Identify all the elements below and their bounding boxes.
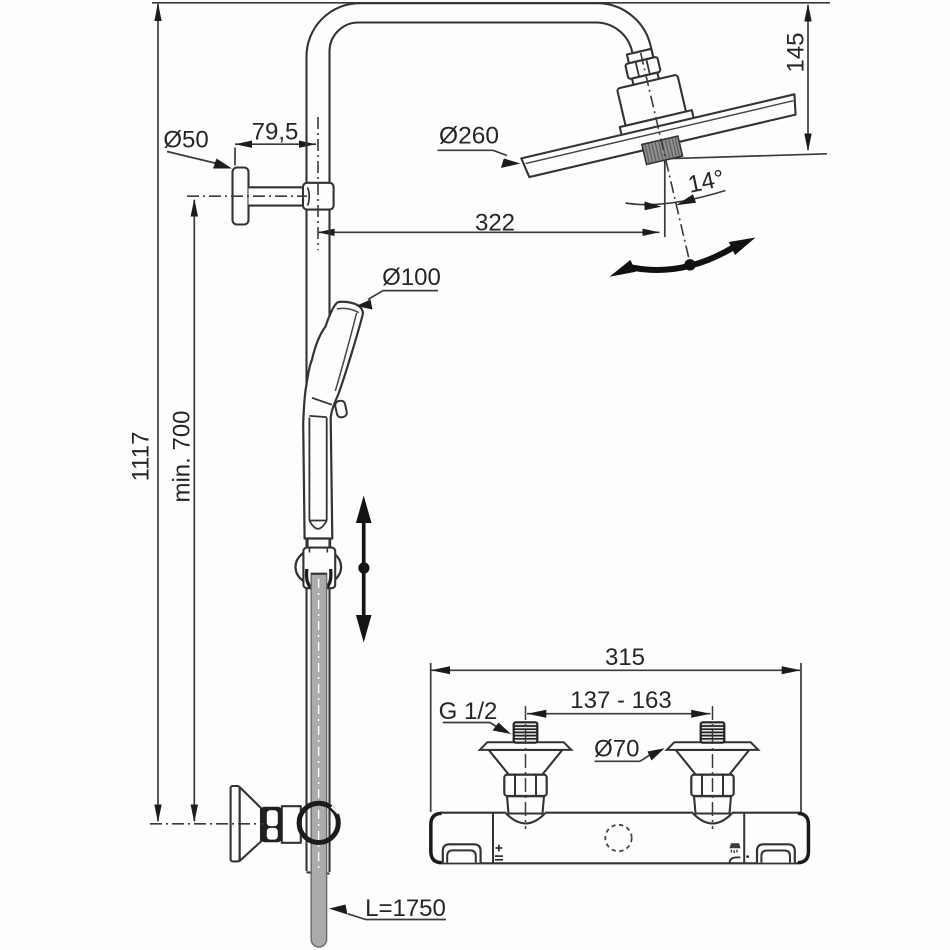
- svg-text:L=1750: L=1750: [365, 895, 446, 922]
- svg-text:Ø70: Ø70: [594, 735, 639, 762]
- svg-text:Ø100: Ø100: [382, 264, 441, 291]
- svg-text:137 - 163: 137 - 163: [570, 687, 671, 714]
- svg-text:1117: 1117: [128, 432, 155, 482]
- svg-text:79,5: 79,5: [252, 119, 299, 146]
- svg-text:Ø50: Ø50: [163, 126, 208, 153]
- svg-text:145: 145: [783, 32, 810, 72]
- svg-text:min. 700: min. 700: [169, 410, 196, 502]
- svg-text:315: 315: [605, 644, 645, 671]
- svg-text:G 1/2: G 1/2: [439, 698, 498, 725]
- svg-text:Ø260: Ø260: [439, 123, 499, 150]
- svg-text:322: 322: [475, 210, 515, 237]
